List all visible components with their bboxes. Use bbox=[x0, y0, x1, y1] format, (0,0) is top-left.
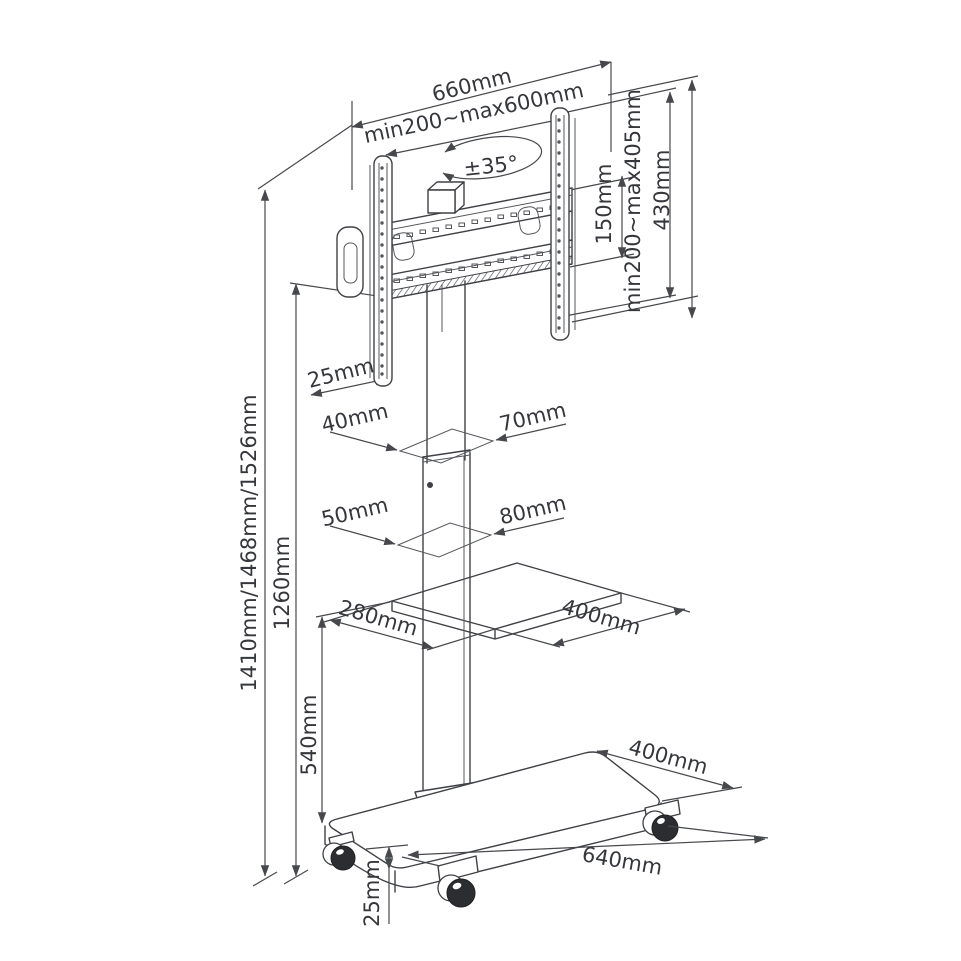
dim-label-vesa-height: min200~max405mm bbox=[621, 89, 645, 313]
extension-line bbox=[495, 629, 560, 647]
dim-label-swivel-angle: ±35° bbox=[462, 151, 519, 181]
section-plane-lower bbox=[398, 523, 491, 557]
dim-label-lower-column-width: 80mm bbox=[497, 491, 568, 530]
dimension-shelf-height bbox=[316, 602, 390, 823]
dim-label-base-depth: 400mm bbox=[626, 735, 710, 779]
left-vesa-arm bbox=[337, 156, 392, 386]
dim-label-rail-height: 150mm bbox=[592, 164, 616, 245]
dim-line-50 bbox=[330, 526, 395, 544]
caster-back-left bbox=[323, 843, 355, 870]
dim-label-shelf-width: 400mm bbox=[559, 594, 643, 639]
dim-label-shelf-height: 540mm bbox=[297, 695, 321, 776]
extension-line bbox=[662, 787, 742, 801]
outer-column bbox=[415, 450, 483, 807]
dimension-upper-column-section bbox=[330, 424, 566, 463]
dim-label-bracket-height: 430mm bbox=[650, 150, 674, 231]
locking-screw bbox=[427, 482, 433, 488]
wall-clamp bbox=[337, 227, 363, 297]
caster-front bbox=[438, 875, 475, 907]
dim-label-bracket-offset: 25mm bbox=[305, 353, 376, 393]
tilt-lock-knob bbox=[428, 182, 464, 213]
dim-line-40 bbox=[330, 432, 397, 450]
dim-label-upper-column-depth: 40mm bbox=[319, 399, 390, 438]
dim-label-lower-column-depth: 50mm bbox=[319, 493, 390, 532]
extension-line bbox=[427, 629, 495, 650]
dim-label-column-height: 1260mm bbox=[270, 536, 294, 630]
dim-label-base-length: 640mm bbox=[580, 842, 664, 880]
extension-line bbox=[621, 593, 690, 612]
dim-label-overall-heights: 1410mm/1468mm/1526mm bbox=[237, 394, 261, 691]
tick bbox=[258, 125, 352, 189]
dim-label-upper-column-width: 70mm bbox=[497, 398, 568, 437]
upper-rail bbox=[378, 188, 572, 248]
extension-line bbox=[668, 826, 768, 838]
section-plane-upper bbox=[400, 429, 493, 463]
dimension-lower-column-section bbox=[330, 518, 564, 557]
inner-column-upper bbox=[427, 281, 465, 463]
dimension-diagram-page: 660mm min200~max600mm ±35° 150mm min200~… bbox=[0, 0, 961, 961]
dim-label-base-thickness: 25mm bbox=[360, 859, 384, 927]
tv-floor-stand-dimension-drawing: 660mm min200~max600mm ±35° 150mm min200~… bbox=[0, 0, 961, 961]
